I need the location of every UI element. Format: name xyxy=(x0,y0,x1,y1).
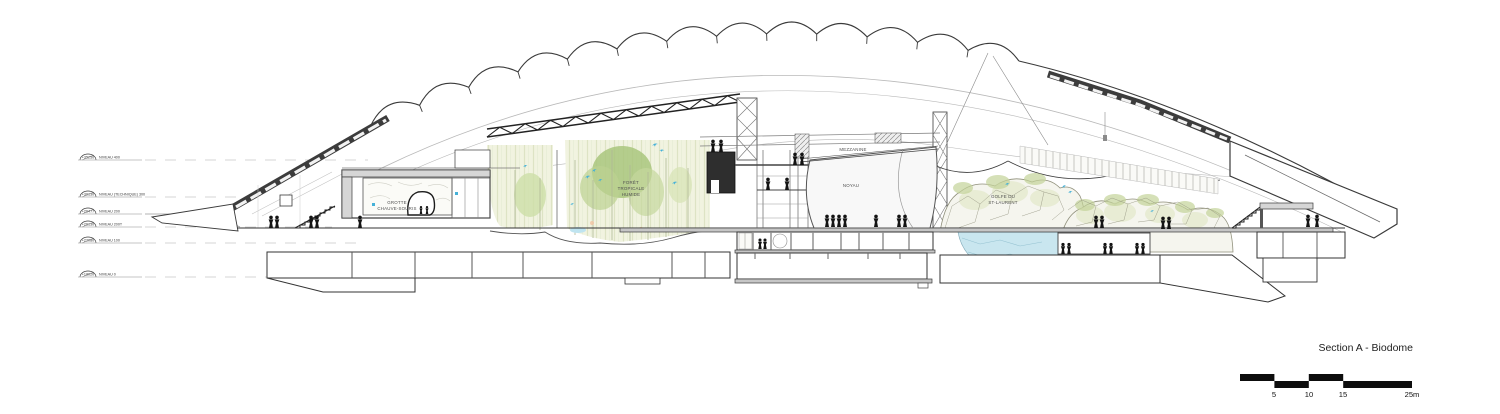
person-icon xyxy=(275,216,280,228)
noyau-volume xyxy=(800,146,938,228)
level-elevation: +26130 xyxy=(82,223,94,227)
person-icon xyxy=(269,216,274,228)
drawing-title: Section A - Biodome xyxy=(1318,342,1413,354)
level-name: NIVEAU 0 xyxy=(99,273,116,277)
landing-slab xyxy=(1260,203,1313,209)
label-foret-line3: HUMIDE xyxy=(622,192,641,197)
right-skylight-band xyxy=(1048,74,1230,140)
basement-left-band xyxy=(267,252,730,278)
entry-window xyxy=(280,195,292,206)
level-elevation: +35250 xyxy=(82,156,94,160)
lattice-mast-central xyxy=(737,98,757,160)
level-name: NIVEAU 100 xyxy=(99,239,120,243)
basement xyxy=(267,252,932,292)
level-name: NIVEAU (TECHNIQUE) 300 xyxy=(99,193,145,197)
tree-canopy xyxy=(514,173,546,217)
scale-bar: 5 10 15 25m xyxy=(1240,374,1419,399)
scale-label-10: 10 xyxy=(1305,390,1313,399)
person-icon xyxy=(793,153,798,165)
forest-truss xyxy=(487,94,740,137)
label-golfe-line2: ST-LAURENT xyxy=(988,200,1017,205)
bird-icon xyxy=(372,203,375,206)
level-marker-100: +22080 NIVEAU 100 xyxy=(78,237,362,243)
tree-canopy xyxy=(580,166,620,210)
level-name: NIVEAU 400 xyxy=(99,156,120,160)
person-icon xyxy=(1306,215,1311,227)
title-block: Section A - Biodome 5 10 15 25m xyxy=(1240,342,1419,399)
scalloped-roof-edge xyxy=(371,22,1019,126)
exit-stair xyxy=(1232,203,1313,228)
scale-label-5: 5 xyxy=(1272,390,1276,399)
lower-hall xyxy=(737,253,927,279)
level-marker-300: +30130 NIVEAU (TECHNIQUE) 300 xyxy=(78,191,244,197)
person-icon xyxy=(785,178,790,190)
level-elevation: +18020 xyxy=(82,273,94,277)
dark-observation-box xyxy=(707,152,735,193)
level-elevation: +30130 xyxy=(82,193,94,197)
section-drawing: +35250 NIVEAU 400 +30130 NIVEAU (TECHNIQ… xyxy=(0,0,1500,414)
label-foret-line1: FORÊT xyxy=(623,180,639,185)
label-mezzanine: MEZZANINE xyxy=(839,147,866,152)
bird-icon xyxy=(455,192,458,195)
person-icon xyxy=(766,178,771,190)
label-grotte-line2: CHAUVE-SOURIS xyxy=(377,206,416,211)
label-noyau: NOYAU xyxy=(843,183,859,188)
label-grotte-line1: GROTTE xyxy=(387,200,407,205)
main-floor-slab xyxy=(620,228,1333,232)
scale-label-25m: 25m xyxy=(1405,390,1420,399)
level-elevation: +26477 xyxy=(82,210,94,214)
level-elevation: +22080 xyxy=(82,239,94,243)
label-foret-line2: TROPICALE xyxy=(618,186,645,191)
level-name: NIVEAU 200 xyxy=(99,210,120,214)
person-icon xyxy=(315,216,320,228)
label-golfe-line1: GOLFE DU xyxy=(991,194,1015,199)
person-icon xyxy=(358,216,363,228)
level-name: NIVEAU 200T xyxy=(99,223,123,227)
roof-wedge-right xyxy=(1230,141,1397,238)
scale-label-15: 15 xyxy=(1339,390,1347,399)
